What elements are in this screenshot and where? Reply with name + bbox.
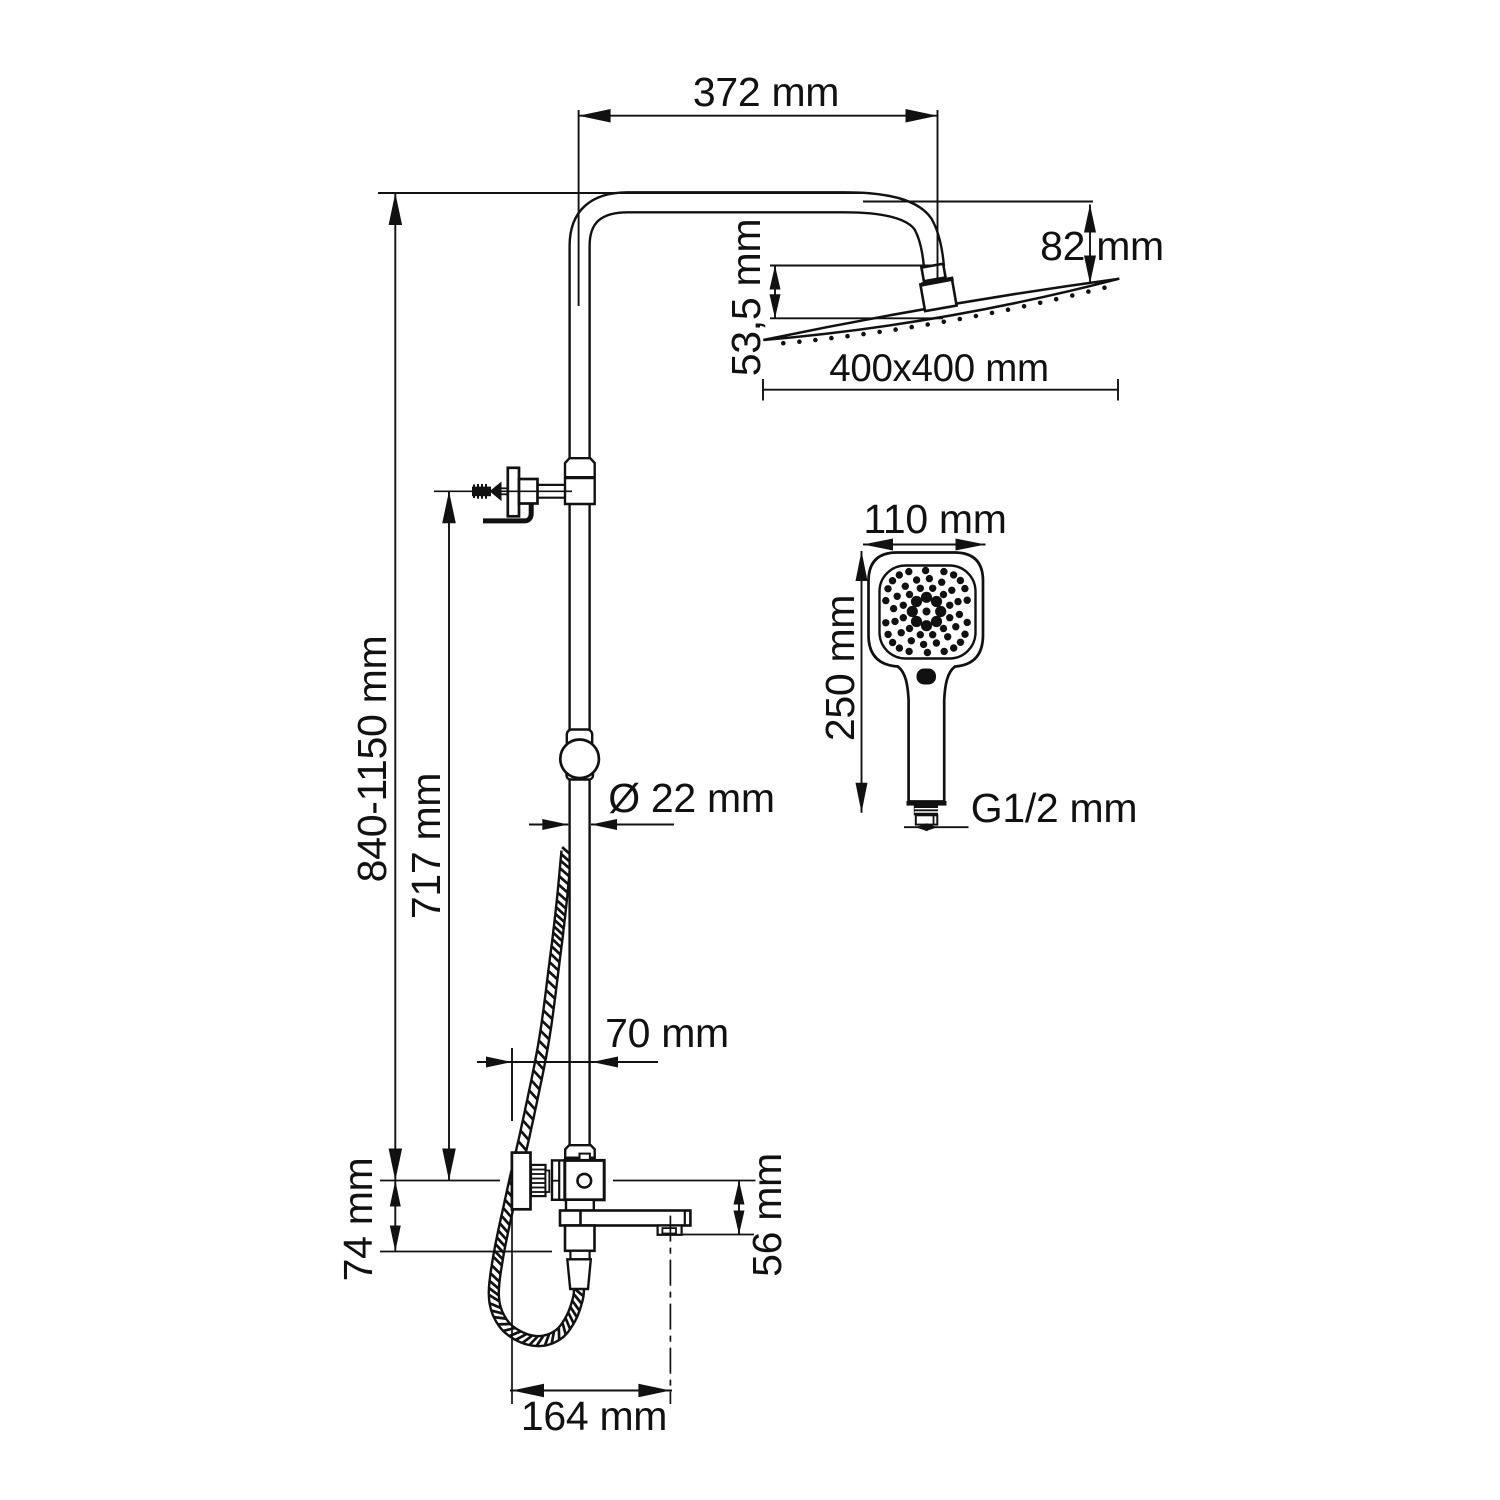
svg-text:G1/2 mm: G1/2 mm (971, 785, 1138, 831)
svg-text:110 mm: 110 mm (863, 496, 1006, 542)
svg-text:840-1150 mm: 840-1150 mm (349, 636, 395, 883)
svg-text:74 mm: 74 mm (335, 1158, 381, 1282)
svg-text:717 mm: 717 mm (403, 773, 449, 919)
svg-text:250 mm: 250 mm (817, 595, 863, 741)
svg-text:82 mm: 82 mm (1040, 223, 1164, 269)
svg-text:Ø 22 mm: Ø 22 mm (608, 775, 775, 821)
svg-text:400x400 mm: 400x400 mm (829, 347, 1049, 390)
svg-text:164 mm: 164 mm (521, 1393, 667, 1439)
svg-text:372 mm: 372 mm (693, 69, 839, 115)
svg-text:56 mm: 56 mm (744, 1153, 790, 1277)
svg-text:70 mm: 70 mm (605, 1010, 729, 1056)
svg-text:53,5 mm: 53,5 mm (723, 219, 769, 376)
